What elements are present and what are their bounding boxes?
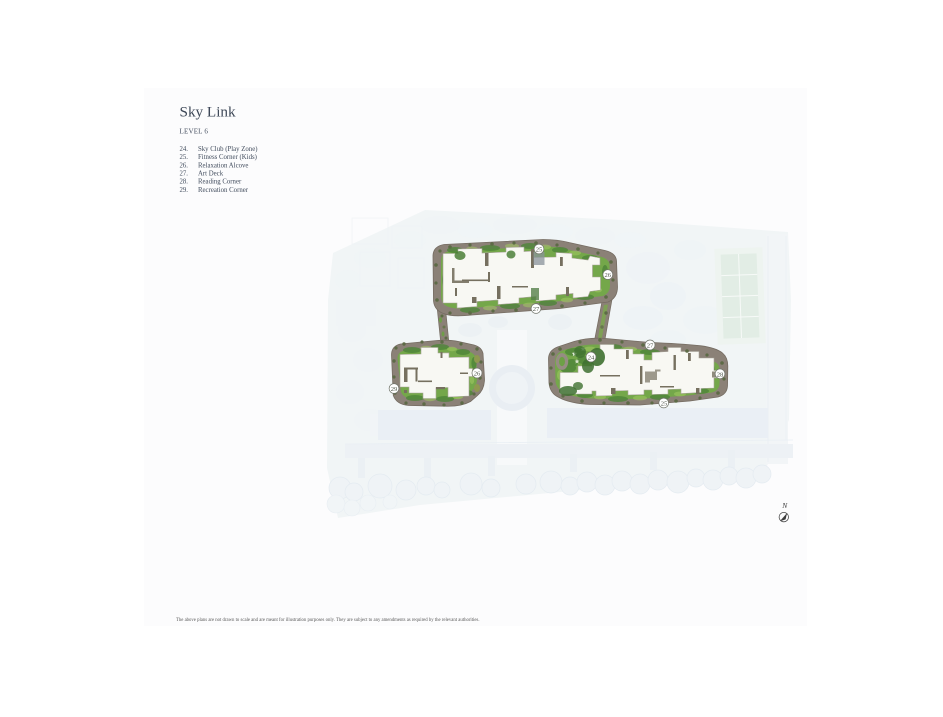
svg-text:28.: 28. — [180, 179, 189, 186]
svg-text:N: N — [781, 501, 788, 510]
svg-text:The above plans are not drawn: The above plans are not drawn to scale a… — [176, 618, 480, 623]
svg-text:27.: 27. — [180, 171, 189, 178]
svg-text:Sky Link: Sky Link — [180, 104, 237, 121]
svg-text:Fitness Corner (Kids): Fitness Corner (Kids) — [198, 154, 257, 161]
svg-text:26: 26 — [605, 272, 612, 279]
svg-text:28: 28 — [717, 371, 724, 378]
svg-text:Art Deck: Art Deck — [198, 171, 224, 178]
svg-text:25: 25 — [536, 246, 543, 253]
svg-text:27: 27 — [533, 306, 540, 313]
svg-text:27: 27 — [647, 342, 654, 349]
svg-text:25: 25 — [661, 400, 668, 407]
svg-text:Relaxation Alcove: Relaxation Alcove — [198, 162, 248, 169]
svg-text:Sky Club (Play Zone): Sky Club (Play Zone) — [198, 146, 257, 153]
svg-text:LEVEL 6: LEVEL 6 — [180, 127, 209, 135]
svg-text:29: 29 — [391, 386, 398, 393]
svg-text:Recreation Corner: Recreation Corner — [198, 187, 249, 194]
svg-text:Reading Corner: Reading Corner — [198, 179, 242, 186]
svg-text:29.: 29. — [180, 187, 189, 194]
svg-text:24.: 24. — [180, 146, 189, 153]
svg-text:25.: 25. — [180, 154, 189, 161]
svg-text:26: 26 — [474, 370, 481, 377]
svg-text:26.: 26. — [180, 162, 189, 169]
svg-text:24: 24 — [588, 354, 595, 361]
